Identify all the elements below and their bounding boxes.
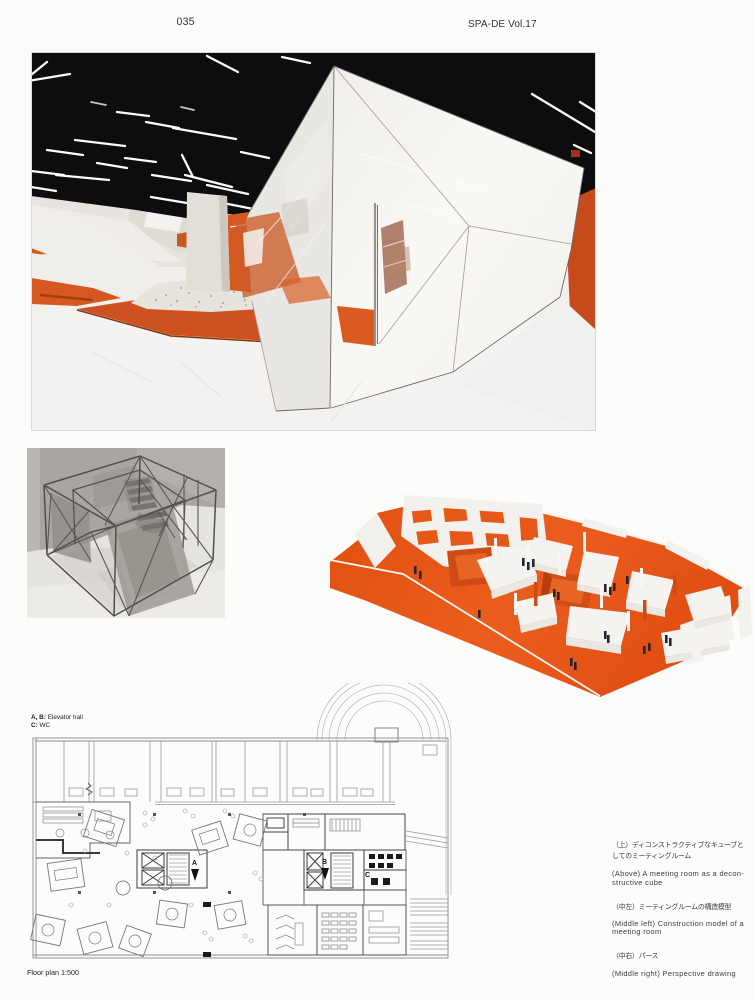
svg-text:C: C — [365, 872, 370, 879]
svg-text:A: A — [192, 860, 197, 867]
svg-text:B: B — [322, 859, 327, 866]
